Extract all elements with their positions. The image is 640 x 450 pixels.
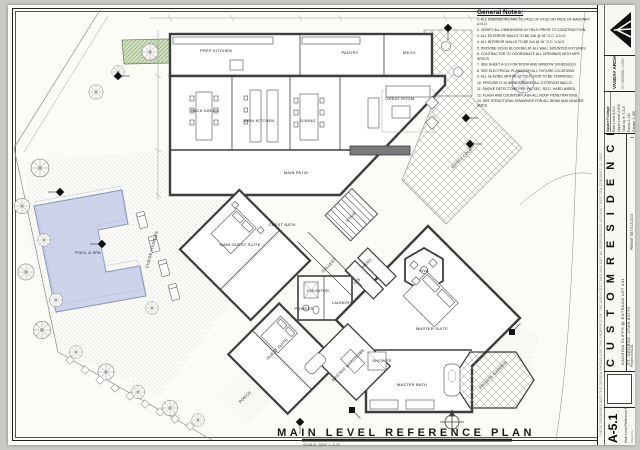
note-item: 13. SEE STRUCTURAL DRAWINGS FOR ALL BEAM…	[477, 100, 593, 109]
tree-icon	[18, 264, 34, 280]
tree-icon	[49, 293, 63, 307]
room-label: SHOWER	[372, 358, 391, 363]
sqft-row: Upper Level 2,805	[617, 92, 621, 132]
sheet-number: A-5.1	[606, 409, 620, 443]
room-label: MASTER SUITE	[416, 326, 448, 331]
issue-date: PERMIT SET 8.15.2003	[630, 137, 634, 250]
tree-icon	[146, 302, 159, 315]
note-item: 3. ALL EXTERIOR WALLS TO BE 2x6 @ 16" O.…	[477, 35, 593, 39]
project-info: C U S T O M R E S I D E N C E KACHINA CL…	[604, 133, 635, 372]
room-label: KIVA	[419, 268, 429, 273]
note-item: 4. ALL INTERIOR WALLS TO BE 2x4 @ 16" O.…	[477, 41, 593, 45]
sheet-title: Main Level Reference Plan	[624, 409, 628, 443]
room-label: PREP KITCHEN	[200, 48, 232, 53]
title-block-main: VASDAY ARCHITECTS, PLLC ST. GEORGE • UTA…	[604, 5, 635, 445]
sqft-rows: Main Level 4,510Upper Level 2,805Total s…	[612, 92, 635, 132]
tree-icon	[70, 346, 83, 359]
general-notes-title: General Notes:	[477, 9, 595, 16]
sqft-row: Total sq. ft. 7,315	[622, 92, 626, 132]
note-item: 11. SMOKE DETECTORS PER IRC SEC. R317, H…	[477, 88, 593, 92]
room-label: ELEVATOR	[307, 288, 329, 293]
tree-icon	[192, 414, 205, 427]
tree-icon	[89, 85, 103, 99]
floor-plan-sheet: PREP KITCHENPANTRYMECH.BACK DININGMAIN K…	[0, 0, 640, 450]
firm-address: ST. GEORGE • UTAH	[621, 57, 625, 89]
tree-icon	[162, 400, 177, 415]
sqft-row: Main Level 4,510	[612, 92, 616, 132]
general-notes-list: 1. ALL DIMENSIONS ARE TO FACE OF STUD OR…	[477, 18, 593, 108]
revision-box	[604, 371, 635, 408]
note-item: 8. SEE ELECTRICAL PLANS FOR ALL FIXTURE …	[477, 69, 593, 73]
plan-title: MAIN LEVEL REFERENCE PLAN	[277, 427, 535, 439]
sqft-row: Patios 2,140	[627, 92, 631, 132]
tree-icon	[31, 159, 49, 177]
room-label: PANTRY	[341, 50, 358, 55]
project-location: KACHINA CLIFFS @ ENTRADA LOT #41	[620, 139, 625, 365]
firm-name: VASDAY ARCHITECTS, PLLC	[612, 57, 617, 89]
room-label: GALLERY	[320, 256, 338, 274]
firm-logo-box	[604, 5, 635, 56]
room-label: MECH.	[403, 50, 417, 55]
room-label: POWDER	[294, 306, 313, 311]
copyright-text: THESE DRAWINGS AND THE DESIGN SHOWN ARE …	[599, 7, 603, 437]
note-item: 10. PROVIDE R-19 INSULATION AT ALL EXTER…	[477, 82, 593, 86]
plan-scale: SCALE: 3/16" = 1'-0"	[303, 442, 341, 447]
sqft-row: Garage 1,185	[632, 92, 635, 132]
revision-box-inner	[607, 374, 632, 404]
room-label: GREAT ROOM	[386, 96, 415, 101]
tree-icon	[142, 44, 158, 60]
room-label: BACK DINING	[191, 108, 219, 113]
room-label: MAIN GUEST SUITE	[220, 242, 261, 247]
square-footage-table: Square Footage Main Level 4,510Upper Lev…	[604, 91, 635, 134]
note-item: 9. ALL GLAZING WITHIN 18" OF FLOOR TO BE…	[477, 75, 593, 79]
title-block: THESE DRAWINGS AND THE DESIGN SHOWN ARE …	[597, 5, 635, 445]
room-label: LAUNDRY	[332, 300, 353, 305]
room-label: MAIN KITCHEN	[243, 118, 274, 123]
general-notes: General Notes: 1. ALL DIMENSIONS ARE TO …	[477, 9, 595, 159]
tree-icon	[38, 234, 51, 247]
project-title: C U S T O M R E S I D E N C E	[605, 137, 617, 367]
firm-info: VASDAY ARCHITECTS, PLLC ST. GEORGE • UTA…	[604, 55, 635, 92]
note-item: 2. VERIFY ALL DIMENSIONS IN FIELD PRIOR …	[477, 28, 593, 32]
room-label: MAIN PATIO	[284, 170, 309, 175]
project-number-strip: PERMIT SET 8.15.2003 Project # KC41	[626, 133, 635, 371]
sheet-number-label: Sheet No.	[630, 409, 634, 443]
room-label: GUEST BATH	[268, 222, 295, 227]
room-label: POOL & SPA	[75, 250, 101, 255]
note-item: 6. CONTRACTOR TO COORDINATE ALL OPENINGS…	[477, 53, 593, 62]
room-label: MASTER BATH	[397, 382, 427, 387]
tree-icon	[33, 321, 50, 338]
note-item: 5. PROVIDE SOLID BLOCKING AT ALL WALL MO…	[477, 47, 593, 51]
plan-title-block: MAIN LEVEL REFERENCE PLAN SCALE: 3/16" =…	[277, 427, 535, 447]
sheet-number-box: A-5.1 Main Level Reference Plan Sheet No…	[604, 407, 635, 445]
fireplace	[350, 146, 410, 155]
note-item: 7. SEE SHEET A-9.1 FOR DOOR AND WINDOW S…	[477, 63, 593, 67]
room-label: DINING	[300, 118, 315, 123]
sqft-header: Square Footage	[606, 92, 611, 132]
note-item: 12. FLASH AND COUNTERFLASH ALL ROOF PENE…	[477, 94, 593, 98]
note-item: 1. ALL DIMENSIONS ARE TO FACE OF STUD OR…	[477, 18, 593, 27]
project-number: Project # KC41	[630, 253, 634, 367]
tree-icon	[14, 198, 29, 213]
